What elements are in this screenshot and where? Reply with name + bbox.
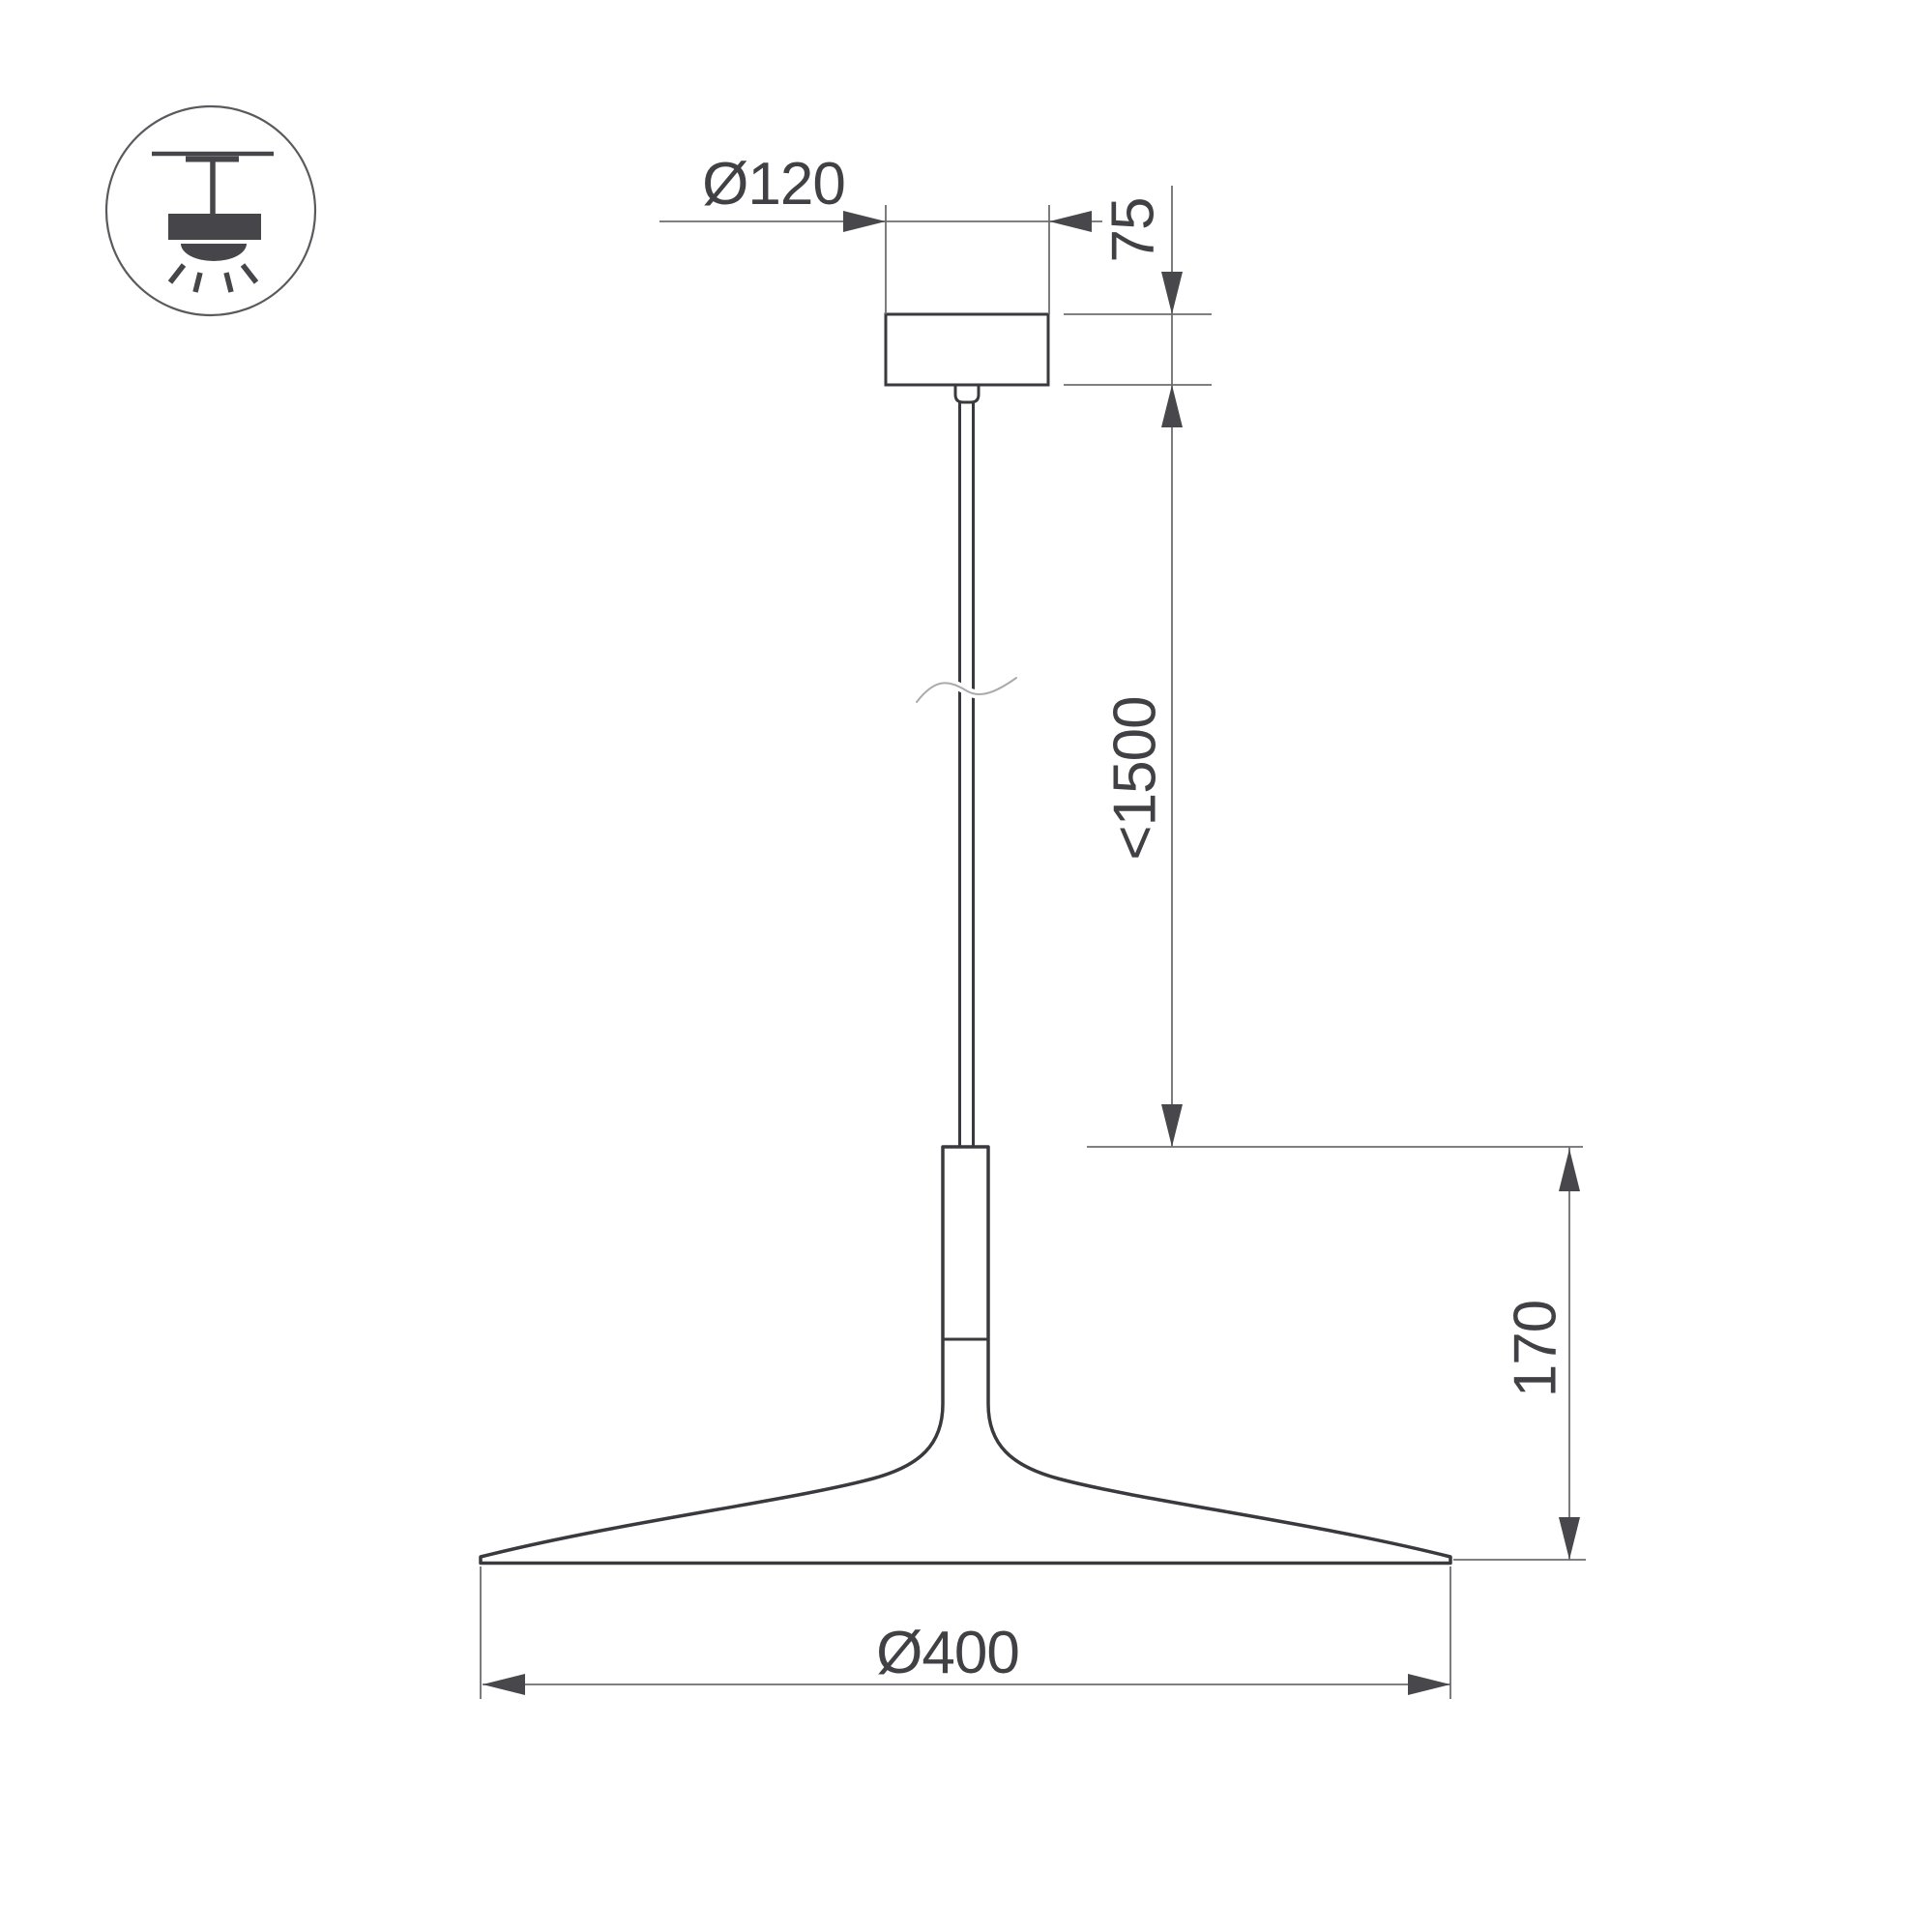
dimension-shade-diameter: Ø400 <box>481 1566 1450 1699</box>
cable-break-mark <box>917 678 1016 702</box>
cable-gland <box>955 385 979 402</box>
arrow-right-icon <box>843 211 886 232</box>
lamp-shade-profile <box>481 1147 1450 1564</box>
dimension-label-shade-height: 170 <box>1503 1301 1569 1397</box>
pendant-lamp-dimension-drawing: Ø120 75 <1500 170 <box>0 0 1932 1932</box>
arrow-down-icon <box>1161 1104 1183 1147</box>
arrow-up-icon <box>1161 385 1183 427</box>
dimension-shade-height: 170 <box>1087 1147 1586 1560</box>
technical-drawing-page: Ø120 75 <1500 170 <box>0 0 1932 1932</box>
arrow-down-icon <box>1161 272 1183 314</box>
dimension-suspension-length: <1500 <box>1102 696 1184 1147</box>
dimension-canopy-diameter: Ø120 <box>659 151 1102 314</box>
mounting-type-icon <box>106 106 315 315</box>
arrow-down-icon <box>1559 1517 1580 1560</box>
dimension-canopy-height: 75 <box>1064 186 1212 1147</box>
dimension-label-canopy-diameter: Ø120 <box>702 151 845 218</box>
arrow-up-icon <box>1559 1149 1580 1191</box>
dimension-label-shade-diameter: Ø400 <box>876 1620 1019 1686</box>
dimension-label-suspension-length: <1500 <box>1102 696 1169 860</box>
arrow-left-icon <box>1049 211 1092 232</box>
ceiling-canopy <box>886 314 1048 385</box>
lamp-fixture <box>481 314 1450 1564</box>
arrow-right-icon <box>1408 1674 1450 1695</box>
dimension-label-canopy-height: 75 <box>1100 198 1167 263</box>
arrow-left-icon <box>483 1674 525 1695</box>
